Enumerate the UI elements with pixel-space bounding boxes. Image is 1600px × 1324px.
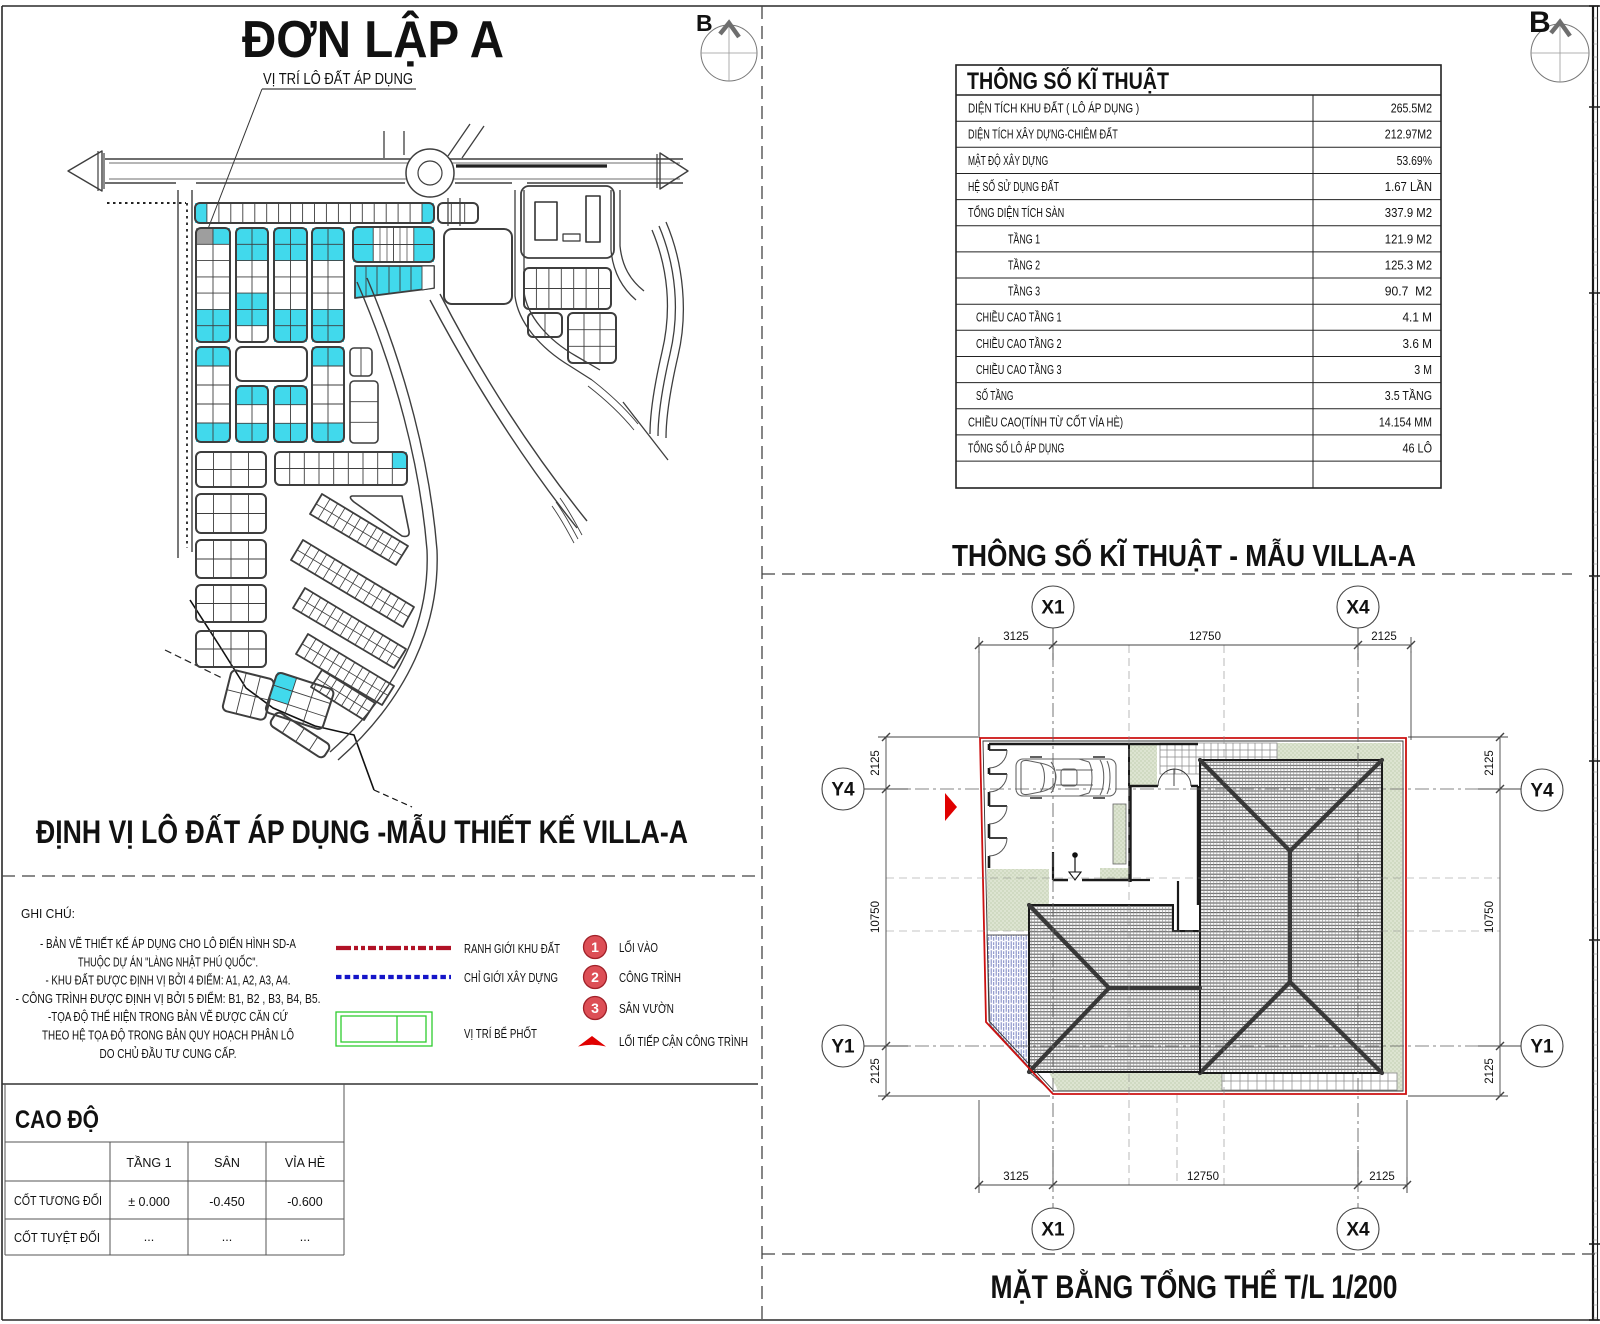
svg-text:2125: 2125 xyxy=(1369,1171,1395,1183)
svg-text:1: 1 xyxy=(591,939,599,955)
svg-text:14.154 MM: 14.154 MM xyxy=(1379,414,1432,429)
svg-text:ĐỊNH VỊ LÔ ĐẤT ÁP DỤNG -MẪU TH: ĐỊNH VỊ LÔ ĐẤT ÁP DỤNG -MẪU THIẾT KẾ VIL… xyxy=(36,814,688,850)
svg-text:1.67 LẦN: 1.67 LẦN xyxy=(1385,179,1432,194)
svg-text:LỐI VÀO: LỐI VÀO xyxy=(619,940,658,955)
svg-text:337.9 M2: 337.9 M2 xyxy=(1385,205,1432,220)
svg-text:TỔNG DIỆN TÍCH SÀN: TỔNG DIỆN TÍCH SÀN xyxy=(968,205,1064,220)
svg-text:CỐT TUYỆT ĐỐI: CỐT TUYỆT ĐỐI xyxy=(14,1230,100,1245)
svg-text:X4: X4 xyxy=(1346,598,1370,619)
svg-text:± 0.000: ± 0.000 xyxy=(128,1195,170,1209)
svg-text:2125: 2125 xyxy=(870,750,882,776)
svg-text:SÂN VƯỜN: SÂN VƯỜN xyxy=(619,1001,674,1016)
svg-text:B: B xyxy=(696,10,713,36)
svg-text:3125: 3125 xyxy=(1003,1171,1029,1183)
svg-text:GHI CHÚ:: GHI CHÚ: xyxy=(21,906,75,921)
svg-text:3 M: 3 M xyxy=(1414,362,1432,377)
svg-text:2125: 2125 xyxy=(1484,1058,1496,1084)
svg-text:B: B xyxy=(1529,6,1551,39)
svg-text:TẦNG 1: TẦNG 1 xyxy=(126,1155,171,1170)
svg-text:CHIỀU CAO TẦNG 1: CHIỀU CAO TẦNG 1 xyxy=(976,310,1062,325)
svg-text:X4: X4 xyxy=(1346,1220,1370,1241)
svg-text:3: 3 xyxy=(591,1000,599,1016)
svg-text:212.97M2: 212.97M2 xyxy=(1385,127,1432,142)
svg-text:121.9 M2: 121.9 M2 xyxy=(1385,231,1432,246)
svg-text:CHIỀU CAO(TÍNH TỪ CỐT VỈA HÈ): CHIỀU CAO(TÍNH TỪ CỐT VỈA HÈ) xyxy=(968,414,1123,429)
svg-text:CAO ĐỘ: CAO ĐỘ xyxy=(15,1104,99,1134)
svg-text:X1: X1 xyxy=(1041,598,1065,619)
svg-text:...: ... xyxy=(300,1230,310,1244)
svg-text:12750: 12750 xyxy=(1187,1171,1219,1183)
svg-text:Y4: Y4 xyxy=(1530,781,1554,802)
svg-text:- CÔNG TRÌNH ĐƯỢC ĐỊNH VỊ BỞI: - CÔNG TRÌNH ĐƯỢC ĐỊNH VỊ BỞI 5 ĐIỂM: B1… xyxy=(16,991,321,1006)
svg-text:...: ... xyxy=(222,1230,232,1244)
svg-text:SÂN: SÂN xyxy=(214,1155,240,1170)
svg-text:TẦNG 3: TẦNG 3 xyxy=(1008,284,1040,299)
svg-text:265.5M2: 265.5M2 xyxy=(1391,101,1432,116)
svg-text:3.5 TẦNG: 3.5 TẦNG xyxy=(1385,388,1432,403)
svg-text:VỊ TRÍ LÔ ĐẤT ÁP DỤNG: VỊ TRÍ LÔ ĐẤT ÁP DỤNG xyxy=(263,71,413,88)
svg-text:RANH GIỚI KHU ĐẤT: RANH GIỚI KHU ĐẤT xyxy=(464,941,560,956)
svg-text:DIỆN TÍCH KHU ĐẤT ( LÔ ÁP DỤNG: DIỆN TÍCH KHU ĐẤT ( LÔ ÁP DỤNG ) xyxy=(968,101,1139,116)
svg-text:CHIỀU CAO TẦNG 2: CHIỀU CAO TẦNG 2 xyxy=(976,336,1062,351)
svg-text:VỈA HÈ: VỈA HÈ xyxy=(285,1155,325,1170)
svg-text:MẬT ĐỘ XÂY DỰNG: MẬT ĐỘ XÂY DỰNG xyxy=(968,153,1048,168)
svg-text:DIỆN TÍCH XÂY DỰNG-CHIÊM ĐẤT: DIỆN TÍCH XÂY DỰNG-CHIÊM ĐẤT xyxy=(968,127,1118,142)
svg-text:- BẢN VẼ THIẾT KẾ ÁP DỤNG CHO: - BẢN VẼ THIẾT KẾ ÁP DỤNG CHO LÔ ĐIỂN HÌ… xyxy=(40,936,296,951)
svg-text:2125: 2125 xyxy=(1371,631,1397,643)
svg-text:TẦNG 2: TẦNG 2 xyxy=(1008,257,1040,272)
svg-text:2125: 2125 xyxy=(870,1058,882,1084)
svg-text:3.6 M: 3.6 M xyxy=(1403,336,1433,351)
svg-text:- KHU ĐẤT ĐƯỢC ĐỊNH VỊ BỞI 4 Đ: - KHU ĐẤT ĐƯỢC ĐỊNH VỊ BỞI 4 ĐIỂM: A1, A… xyxy=(46,973,291,988)
svg-text:TỔNG SỐ LÔ ÁP DỤNG: TỔNG SỐ LÔ ÁP DỤNG xyxy=(968,440,1064,455)
svg-text:125.3 M2: 125.3 M2 xyxy=(1385,257,1432,272)
svg-text:CHIỀU CAO TẦNG 3: CHIỀU CAO TẦNG 3 xyxy=(976,362,1062,377)
svg-text:THÔNG SỐ KĨ THUẬT: THÔNG SỐ KĨ THUẬT xyxy=(967,67,1169,95)
svg-text:DO CHỦ ĐẦU TƯ CUNG CẤP.: DO CHỦ ĐẦU TƯ CUNG CẤP. xyxy=(100,1046,237,1061)
svg-text:10750: 10750 xyxy=(870,901,882,933)
svg-text:HỆ SỐ SỬ DỤNG ĐẤT: HỆ SỐ SỬ DỤNG ĐẤT xyxy=(968,179,1059,194)
svg-text:46 LÔ: 46 LÔ xyxy=(1403,440,1433,455)
svg-text:CHỈ GIỚI XÂY DỰNG: CHỈ GIỚI XÂY DỰNG xyxy=(464,970,558,985)
svg-text:MẶT BẰNG TỔNG THỂ T/L 1/200: MẶT BẰNG TỔNG THỂ T/L 1/200 xyxy=(991,1269,1398,1305)
svg-text:LỐI TIẾP CẬN CÔNG TRÌNH: LỐI TIẾP CẬN CÔNG TRÌNH xyxy=(619,1034,748,1049)
svg-text:TẦNG 1: TẦNG 1 xyxy=(1008,231,1040,246)
svg-text:2: 2 xyxy=(591,969,599,985)
svg-text:3125: 3125 xyxy=(1003,631,1029,643)
svg-text:-TỌA ĐỘ THỂ HIỆN TRONG BẢN VẼ: -TỌA ĐỘ THỂ HIỆN TRONG BẢN VẼ ĐƯỢC CĂN C… xyxy=(48,1009,288,1024)
svg-text:THÔNG SỐ KĨ THUẬT - MẪU VILLA-: THÔNG SỐ KĨ THUẬT - MẪU VILLA-A xyxy=(952,537,1416,573)
svg-text:CÔNG TRÌNH: CÔNG TRÌNH xyxy=(619,970,681,985)
svg-text:VỊ TRÍ BỂ PHỐT: VỊ TRÍ BỂ PHỐT xyxy=(464,1026,537,1041)
svg-text:90.7 M2: 90.7 M2 xyxy=(1385,284,1432,299)
svg-text:Y1: Y1 xyxy=(1530,1037,1554,1058)
svg-text:THUỘC DỰ ÁN "LÀNG NHẬT PHÚ QUỐ: THUỘC DỰ ÁN "LÀNG NHẬT PHÚ QUỐC". xyxy=(78,954,258,969)
svg-text:-0.600: -0.600 xyxy=(287,1195,322,1209)
svg-text:SỐ TẦNG: SỐ TẦNG xyxy=(976,388,1013,403)
svg-text:THEO HỆ TỌA ĐỘ TRONG BẢN QUY H: THEO HỆ TỌA ĐỘ TRONG BẢN QUY HOẠCH PHÂN … xyxy=(42,1028,294,1043)
svg-text:Y1: Y1 xyxy=(831,1037,855,1058)
svg-text:ĐƠN LẬP A: ĐƠN LẬP A xyxy=(242,10,504,69)
svg-text:...: ... xyxy=(144,1230,154,1244)
svg-text:53.69%: 53.69% xyxy=(1397,153,1433,168)
svg-text:4.1 M: 4.1 M xyxy=(1403,310,1433,325)
svg-text:CỐT TƯƠNG ĐỐI: CỐT TƯƠNG ĐỐI xyxy=(14,1193,102,1208)
svg-text:X1: X1 xyxy=(1041,1220,1065,1241)
svg-text:Y4: Y4 xyxy=(831,780,855,801)
svg-text:12750: 12750 xyxy=(1189,631,1221,643)
svg-text:-0.450: -0.450 xyxy=(209,1195,244,1209)
svg-text:10750: 10750 xyxy=(1484,901,1496,933)
svg-text:2125: 2125 xyxy=(1484,750,1496,776)
